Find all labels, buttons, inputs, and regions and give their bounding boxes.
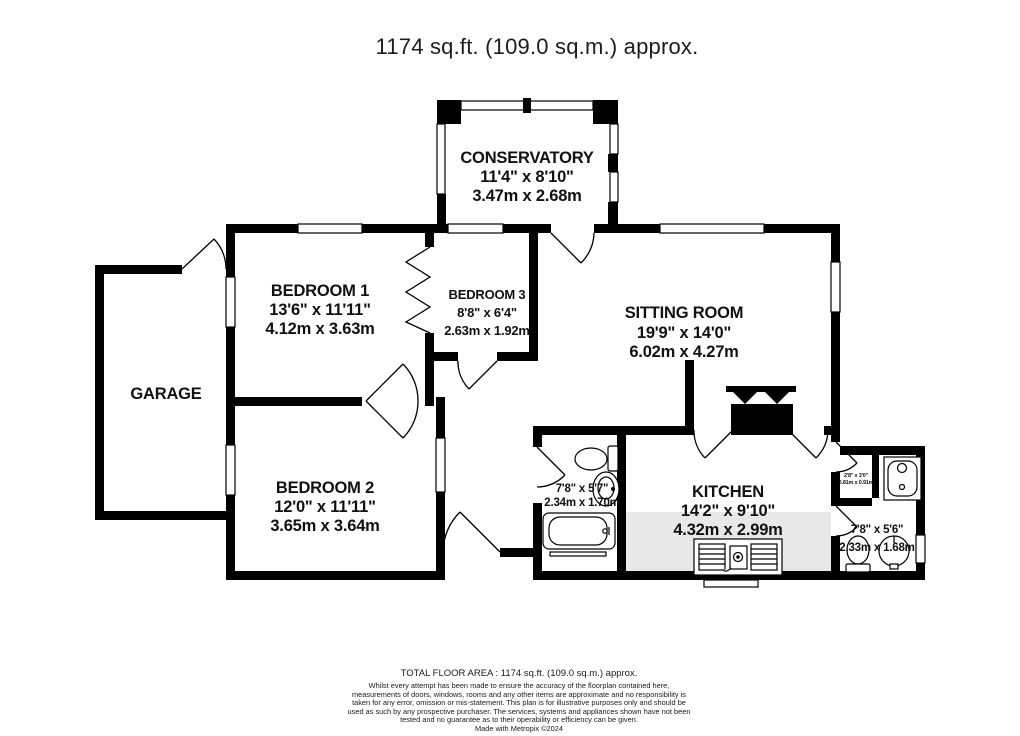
credit-text: Made with Metropix ©2024 [18,725,1020,734]
bedroom2-name: BEDROOM 2 [276,479,374,497]
window-mullion [523,98,531,113]
labels-layer: CONSERVATORY 11'4" x 8'10" 3.47m x 2.68m… [130,149,914,554]
cupboard-imp: 2'8" x 3'0" [844,473,869,479]
bedroom3-name: BEDROOM 3 [449,287,526,302]
conservatory-met: 3.47m x 2.68m [472,187,581,205]
sitting-room-imp: 19'9" x 14'0" [637,324,731,342]
bathroom-imp: 7'8" x 5'7" [556,483,609,495]
sitting-room-name: SITTING ROOM [625,304,744,322]
conservatory-imp: 11'4" x 8'10" [480,168,573,186]
garage-name: GARAGE [130,385,201,403]
bedroom1-met: 4.12m x 3.63m [265,320,374,338]
total-floor-area: TOTAL FLOOR AREA : 1174 sq.ft. (109.0 sq… [18,668,1020,679]
conservatory-name: CONSERVATORY [460,149,593,167]
cupboard-met: 0.81m x 0.91m [839,480,874,486]
kitchen-sink-icon [694,539,782,575]
disclaimer-text: Whilst every attempt has been made to en… [347,682,692,725]
kitchen-name: KITCHEN [692,483,764,501]
bedroom1-imp: 13'6" x 11'11" [269,301,370,319]
kitchen-imp: 14'2" x 9'10" [681,502,775,520]
shower-room-imp: 7'8" x 5'6" [851,524,904,536]
bathroom-met: 2.34m x 1.70m [544,497,619,509]
footer: TOTAL FLOOR AREA : 1174 sq.ft. (109.0 sq… [18,668,1020,734]
bedroom3-met: 2.63m x 1.92m [444,323,530,338]
floorplan-canvas: CONSERVATORY 11'4" x 8'10" 3.47m x 2.68m… [0,0,1020,736]
kitchen-met: 4.32m x 2.99m [673,521,782,539]
shower-icon [884,457,921,500]
bedroom2-met: 3.65m x 3.64m [270,517,379,535]
bedroom2-imp: 12'0" x 11'11" [274,498,375,516]
toilet-icon [575,446,618,471]
sitting-room-met: 6.02m x 4.27m [629,343,738,361]
door-step [704,580,758,587]
bifold-door [406,247,430,333]
shower-room-met: 2.33m x 1.68m [839,542,914,554]
bedroom1-name: BEDROOM 1 [271,282,369,300]
bedroom3-imp: 8'8" x 6'4" [457,305,517,320]
bathtub-icon [543,513,615,556]
